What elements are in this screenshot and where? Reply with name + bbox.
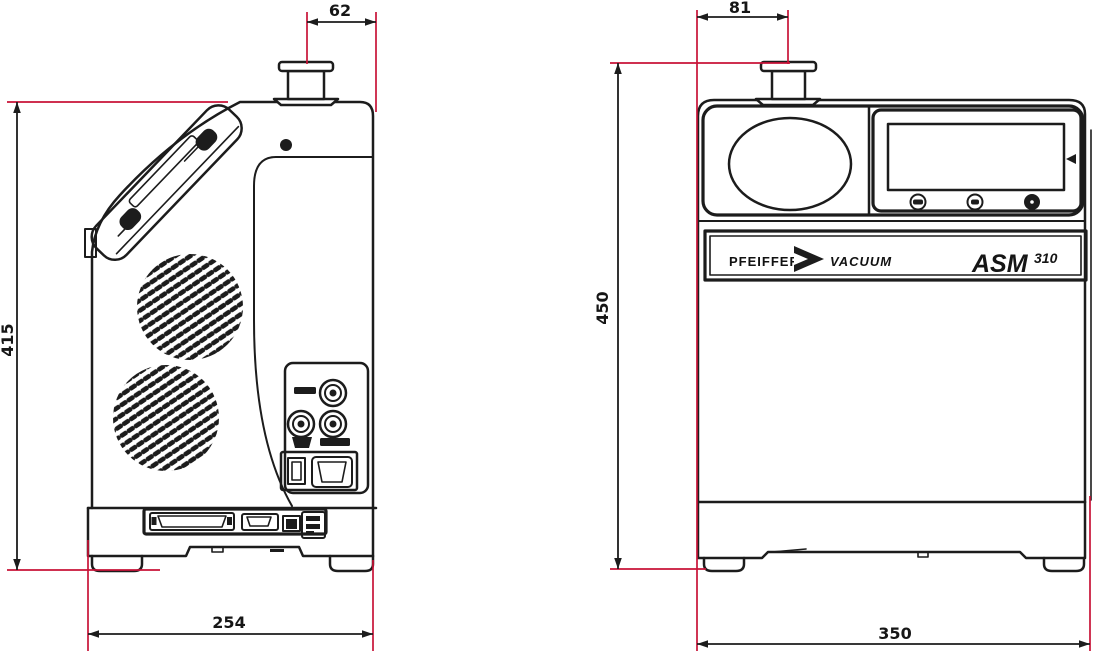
- handle-recess: [729, 118, 851, 210]
- control-panel: [873, 110, 1081, 211]
- dim-arrow-icon: [307, 18, 318, 26]
- dimension-350: 350: [697, 624, 1090, 648]
- dsub-connector-small: [242, 514, 278, 530]
- brand-word-1: PFEIFFER: [729, 254, 800, 269]
- panel-button[interactable]: [1024, 194, 1040, 210]
- dimension-254: 254: [88, 613, 373, 638]
- dim-81-label: 81: [729, 0, 751, 17]
- dim-arrow-icon: [777, 13, 788, 21]
- side-connector-panel: [281, 363, 368, 493]
- brand-word-2: VACUUM: [830, 254, 892, 269]
- dim-arrow-icon: [365, 18, 376, 26]
- dim-arrow-icon: [614, 63, 622, 74]
- dim-450-label: 450: [593, 291, 612, 324]
- side-inlet-flange: [274, 62, 338, 105]
- logo-band: PFEIFFER VACUUM ASM 310: [705, 231, 1086, 280]
- dim-arrow-icon: [13, 102, 21, 113]
- round-connector: [320, 380, 346, 406]
- dim-415-label: 415: [0, 323, 17, 356]
- dsub-connector-large: [150, 513, 234, 530]
- front-view: PFEIFFER VACUUM ASM 310: [698, 62, 1091, 571]
- foot: [704, 558, 744, 571]
- dim-arrow-icon: [697, 640, 708, 648]
- dimension-62: 62: [307, 1, 376, 26]
- side-view: [85, 62, 376, 571]
- side-tilted-panel: [85, 99, 248, 267]
- dim-arrow-icon: [697, 13, 708, 21]
- port-label-illegible: [292, 437, 312, 448]
- panel-button[interactable]: [911, 195, 926, 210]
- dim-254-label: 254: [212, 613, 245, 632]
- model-name: ASM: [971, 250, 1029, 278]
- dimension-450: 450: [593, 63, 622, 569]
- power-entry-module: [281, 452, 357, 490]
- round-connector: [320, 411, 346, 437]
- side-base: [88, 508, 376, 571]
- model-number: 310: [1034, 250, 1058, 266]
- foot: [330, 556, 373, 571]
- dimension-81: 81: [697, 0, 788, 21]
- latch-icon: [1066, 154, 1076, 164]
- foot: [92, 556, 142, 571]
- dim-arrow-icon: [1079, 640, 1090, 648]
- rear-io-strip: [144, 509, 326, 538]
- technical-drawing: PFEIFFER VACUUM ASM 310: [0, 0, 1096, 655]
- screw-icon: [280, 139, 292, 151]
- dim-arrow-icon: [13, 559, 21, 570]
- round-connector: [288, 411, 314, 437]
- dim-62-label: 62: [329, 1, 351, 20]
- dim-arrow-icon: [614, 558, 622, 569]
- pfeiffer-arrow-icon: [794, 246, 824, 272]
- fan-grille-lower: [113, 365, 219, 471]
- side-inner-seam: [254, 157, 373, 506]
- panel-button[interactable]: [968, 195, 983, 210]
- front-inlet-flange: [756, 62, 820, 105]
- dimension-415: 415: [0, 102, 21, 570]
- display-screen: [888, 124, 1064, 190]
- front-base: [698, 502, 1085, 571]
- dim-arrow-icon: [88, 630, 99, 638]
- dim-350-label: 350: [878, 624, 911, 643]
- port-label-illegible: [294, 387, 316, 394]
- fan-grille-upper: [137, 254, 243, 360]
- dim-arrow-icon: [362, 630, 373, 638]
- ethernet-port: [283, 516, 300, 531]
- port-label-illegible: [320, 438, 350, 446]
- foot: [1044, 558, 1084, 571]
